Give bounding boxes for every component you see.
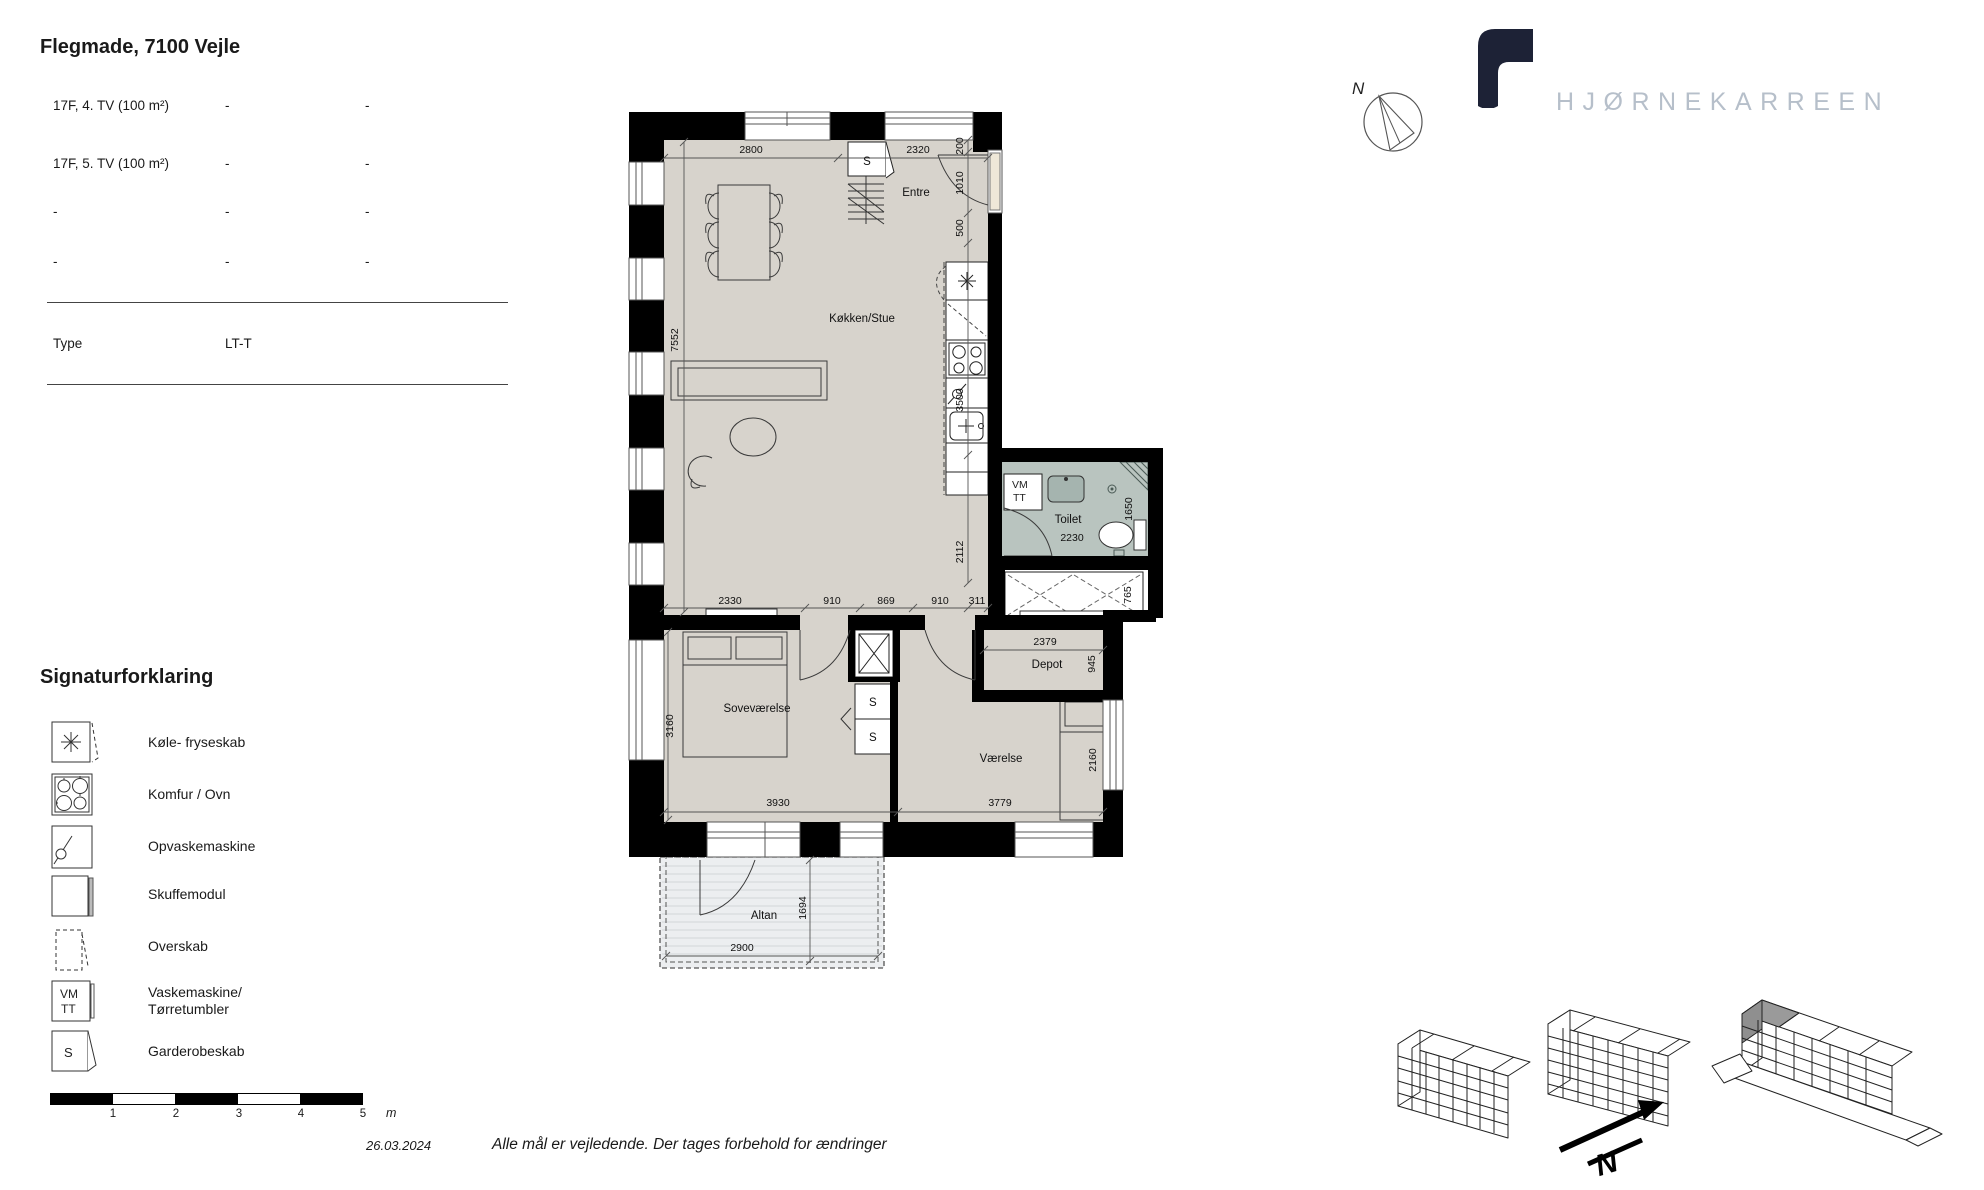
vm-label: VM (1012, 479, 1028, 491)
building-left (1398, 1030, 1530, 1138)
scale-bar (50, 1093, 363, 1105)
type-label: Type (53, 336, 82, 351)
dim-1650: 1650 (1123, 497, 1135, 521)
s-text: S (64, 1045, 73, 1060)
apartment-col3: - (365, 204, 370, 219)
legend-label-stove: Komfur / Ovn (148, 786, 230, 802)
legend-title: Signaturforklaring (40, 666, 213, 689)
dim-7552: 7552 (669, 328, 681, 352)
room-balcony: Altan (751, 910, 777, 922)
legend-label-dishwasher: Opvaskemaskine (148, 838, 255, 854)
compass-n-label: N (1352, 79, 1365, 98)
disclaimer: Alle mål er vejledende. Der tages forbeh… (492, 1136, 887, 1154)
hjornekarreen-logo-icon (1477, 28, 1535, 108)
washer-dryer-icon: VM TT (48, 979, 108, 1025)
apartment-col3: - (365, 98, 370, 113)
scale-tick-5: 5 (360, 1108, 366, 1120)
sofa (671, 361, 827, 400)
wardrobe-icon: S (48, 1029, 108, 1075)
dim-3500: 3500 (954, 388, 966, 412)
dim-500: 500 (954, 219, 966, 237)
brand-name: HJØRNEKARREEN (1556, 88, 1890, 117)
room-varelse: Værelse (980, 753, 1023, 765)
type-value: LT-T (225, 336, 252, 351)
apartment-col2: - (225, 254, 230, 269)
dim-2112: 2112 (954, 541, 966, 564)
legend-label-drawer: Skuffemodul (148, 886, 226, 902)
legend-label-wallcabinet: Overskab (148, 938, 208, 954)
wc-toilet (1099, 520, 1146, 550)
closet-s-label: S (869, 697, 877, 709)
entre-closet-s-label: S (863, 156, 871, 168)
dishwasher-icon (48, 824, 108, 872)
legend-label-washer: Vaskemaskine/ (148, 984, 242, 1000)
site-north-arrow: N (1560, 1100, 1664, 1183)
vm-text: VM (60, 987, 78, 1001)
closet-s-label: S (869, 732, 877, 744)
apartment-id: - (53, 204, 58, 219)
floor-plan-sheet: Flegmade, 7100 Vejle 17F, 4. TV (100 m²)… (0, 0, 1984, 1190)
room-kitchen: Køkken/Stue (829, 313, 895, 325)
building-middle (1548, 1010, 1690, 1126)
apartment-id: - (53, 254, 58, 269)
scale-tick-3: 3 (236, 1108, 242, 1120)
dim-3779: 3779 (988, 797, 1012, 809)
dim-1010: 1010 (954, 171, 966, 195)
tt-label: TT (1013, 492, 1026, 504)
room-bedroom: Soveværelse (723, 703, 790, 715)
dim-945: 945 (1086, 655, 1098, 673)
apartment-col2: - (225, 156, 230, 171)
dim-765: 765 (1122, 586, 1134, 604)
scale-tick-1: 1 (110, 1108, 116, 1120)
single-bed (1060, 698, 1108, 820)
dim-2330: 2330 (718, 595, 742, 607)
dim-3930: 3930 (766, 797, 790, 809)
dim-2320: 2320 (906, 144, 930, 156)
scale-tick-4: 4 (298, 1108, 304, 1120)
wall-cabinet-icon (48, 928, 108, 974)
tt-text: TT (61, 1002, 76, 1016)
dim-910b: 910 (931, 595, 949, 607)
dim-869: 869 (877, 595, 895, 607)
room-entre: Entre (902, 187, 930, 199)
apartment-col3: - (365, 254, 370, 269)
divider (47, 384, 508, 385)
floor-plan: VM TT (612, 80, 1187, 985)
scale-unit: m (386, 1106, 396, 1120)
dim-2379: 2379 (1033, 636, 1057, 648)
dim-2230: 2230 (1060, 532, 1084, 544)
drawer-module-icon (48, 874, 108, 920)
dim-2160: 2160 (1087, 748, 1099, 772)
scale-tick-2: 2 (173, 1108, 179, 1120)
room-toilet: Toilet (1055, 514, 1083, 526)
legend-label-dryer: Tørretumbler (148, 1001, 229, 1017)
dim-1694: 1694 (797, 896, 809, 920)
north-compass: N (1340, 58, 1450, 162)
shaft (855, 630, 893, 677)
fridge-freezer-icon (48, 720, 108, 766)
entrance-door-panel (990, 153, 1000, 210)
dim-910a: 910 (823, 595, 841, 607)
site-axonometric: N (1390, 950, 1960, 1190)
apartment-id: 17F, 5. TV (100 m²) (53, 156, 169, 171)
sliding-door (706, 609, 777, 616)
apartment-col2: - (225, 204, 230, 219)
apartment-id: 17F, 4. TV (100 m²) (53, 98, 169, 113)
double-bed (683, 632, 787, 757)
apartment-col2: - (225, 98, 230, 113)
dim-200: 200 (954, 137, 966, 155)
stove-oven-icon (48, 772, 108, 818)
legend-label-fridge: Køle- fryseskab (148, 734, 245, 750)
room-depot: Depot (1032, 659, 1063, 671)
apartment-col3: - (365, 156, 370, 171)
dim-311: 311 (969, 595, 986, 607)
legend-label-wardrobe: Garderobeskab (148, 1043, 245, 1059)
date: 26.03.2024 (366, 1138, 431, 1153)
page-title: Flegmade, 7100 Vejle (40, 36, 240, 59)
dim-2800: 2800 (739, 144, 763, 156)
dim-3160: 3160 (664, 714, 676, 738)
dim-2900: 2900 (730, 942, 754, 954)
divider (47, 302, 508, 303)
